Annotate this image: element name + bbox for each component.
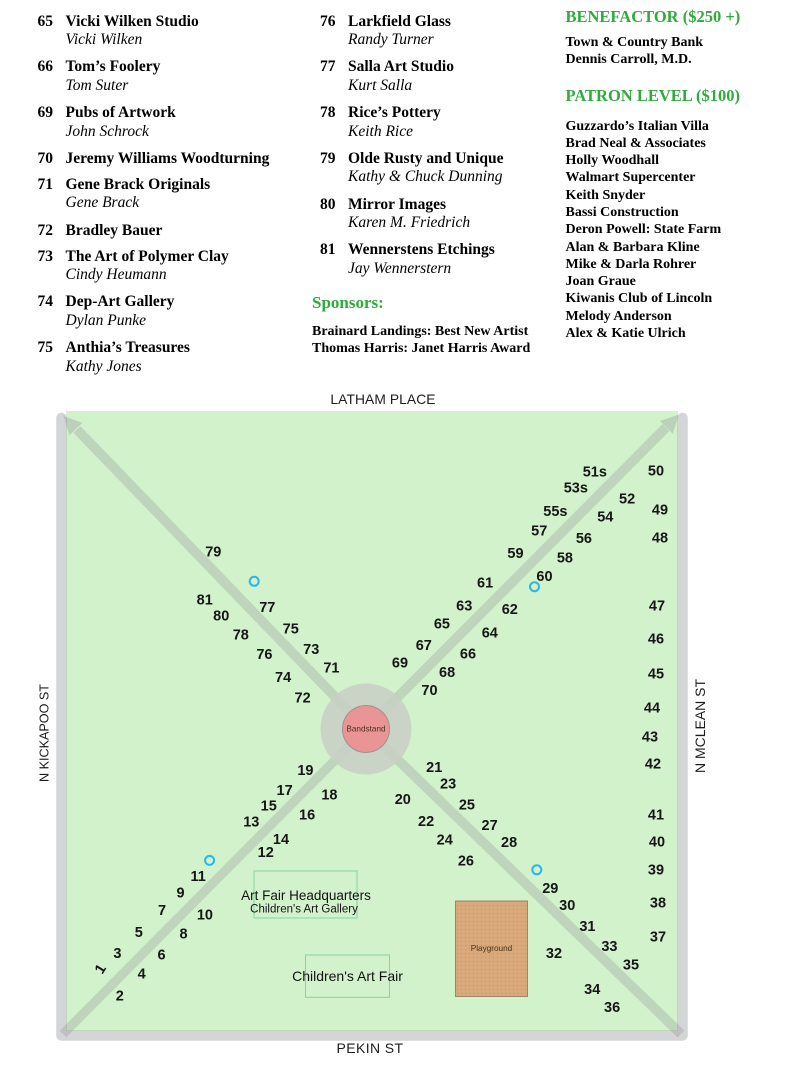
svg-text:60: 60 [536,569,552,585]
svg-text:61: 61 [477,576,493,592]
svg-text:22: 22 [418,814,434,830]
svg-text:59: 59 [507,546,523,562]
svg-text:75: 75 [283,622,299,638]
svg-text:37: 37 [650,929,666,945]
svg-text:56: 56 [576,531,592,547]
svg-text:Bandstand: Bandstand [346,725,386,734]
svg-text:34: 34 [584,982,600,998]
svg-text:26: 26 [458,853,474,869]
svg-text:66: 66 [460,647,476,663]
svg-text:29: 29 [542,881,558,897]
svg-text:18: 18 [321,788,337,804]
svg-text:71: 71 [323,660,339,676]
svg-text:48: 48 [652,530,668,546]
svg-text:7: 7 [158,903,166,919]
svg-text:53s: 53s [564,481,588,497]
svg-text:38: 38 [650,895,666,911]
svg-text:79: 79 [205,545,221,561]
svg-text:25: 25 [459,797,475,813]
svg-text:N KICKAPOO ST: N KICKAPOO ST [37,684,52,782]
svg-text:20: 20 [395,792,411,808]
svg-text:63: 63 [456,599,472,615]
svg-text:Children's Art Gallery: Children's Art Gallery [250,904,358,916]
svg-text:55s: 55s [543,504,567,520]
svg-text:27: 27 [482,818,498,834]
svg-text:39: 39 [648,862,664,878]
svg-text:68: 68 [439,665,455,681]
svg-text:78: 78 [233,628,249,644]
svg-text:65: 65 [434,617,450,633]
svg-text:PEKIN ST: PEKIN ST [337,1040,404,1056]
svg-text:40: 40 [649,834,665,850]
svg-text:81: 81 [197,593,213,609]
svg-text:3: 3 [113,946,121,962]
svg-text:46: 46 [648,631,664,647]
svg-text:15: 15 [261,799,277,815]
svg-text:43: 43 [642,729,658,745]
svg-text:42: 42 [645,756,661,772]
svg-text:57: 57 [531,524,547,540]
svg-text:24: 24 [437,833,453,849]
svg-text:51s: 51s [583,465,607,481]
svg-text:LATHAM PLACE: LATHAM PLACE [330,392,435,407]
svg-text:80: 80 [213,608,229,624]
svg-text:21: 21 [426,760,442,776]
svg-text:23: 23 [440,776,456,792]
svg-text:17: 17 [277,783,293,799]
svg-text:Playground: Playground [471,944,513,953]
svg-text:12: 12 [258,845,274,861]
svg-text:35: 35 [623,957,639,973]
svg-text:50: 50 [648,463,664,479]
svg-text:33: 33 [601,939,617,955]
svg-text:49: 49 [652,502,668,518]
svg-text:30: 30 [559,898,575,914]
svg-text:47: 47 [649,598,665,614]
svg-text:67: 67 [416,638,432,654]
svg-text:9: 9 [177,886,185,902]
svg-text:31: 31 [579,919,595,935]
svg-text:70: 70 [421,683,437,699]
svg-text:4: 4 [138,967,146,983]
svg-text:14: 14 [273,832,289,848]
svg-text:58: 58 [557,551,573,567]
svg-text:45: 45 [648,666,664,682]
svg-text:19: 19 [297,763,313,779]
svg-text:10: 10 [197,907,213,923]
svg-text:16: 16 [299,808,315,824]
svg-text:64: 64 [482,626,498,642]
svg-text:73: 73 [303,642,319,658]
svg-text:N MCLEAN ST: N MCLEAN ST [693,678,708,773]
svg-text:41: 41 [648,807,664,823]
svg-text:44: 44 [644,700,660,716]
svg-text:Children's Art Fair: Children's Art Fair [292,968,403,984]
svg-text:6: 6 [158,948,166,964]
svg-text:28: 28 [501,835,517,851]
svg-text:2: 2 [116,989,124,1005]
svg-text:11: 11 [191,869,206,885]
svg-text:54: 54 [597,510,613,526]
svg-text:77: 77 [259,600,275,616]
svg-text:62: 62 [502,602,518,618]
svg-text:52: 52 [619,492,635,508]
svg-text:72: 72 [295,690,311,706]
svg-text:8: 8 [179,926,187,942]
svg-text:76: 76 [256,647,272,663]
svg-text:5: 5 [135,925,143,941]
svg-text:36: 36 [604,1000,620,1016]
svg-text:Art Fair Headquarters: Art Fair Headquarters [241,888,371,903]
svg-text:74: 74 [275,670,291,686]
svg-text:13: 13 [243,815,259,831]
svg-text:32: 32 [546,946,562,962]
svg-text:69: 69 [392,655,408,671]
